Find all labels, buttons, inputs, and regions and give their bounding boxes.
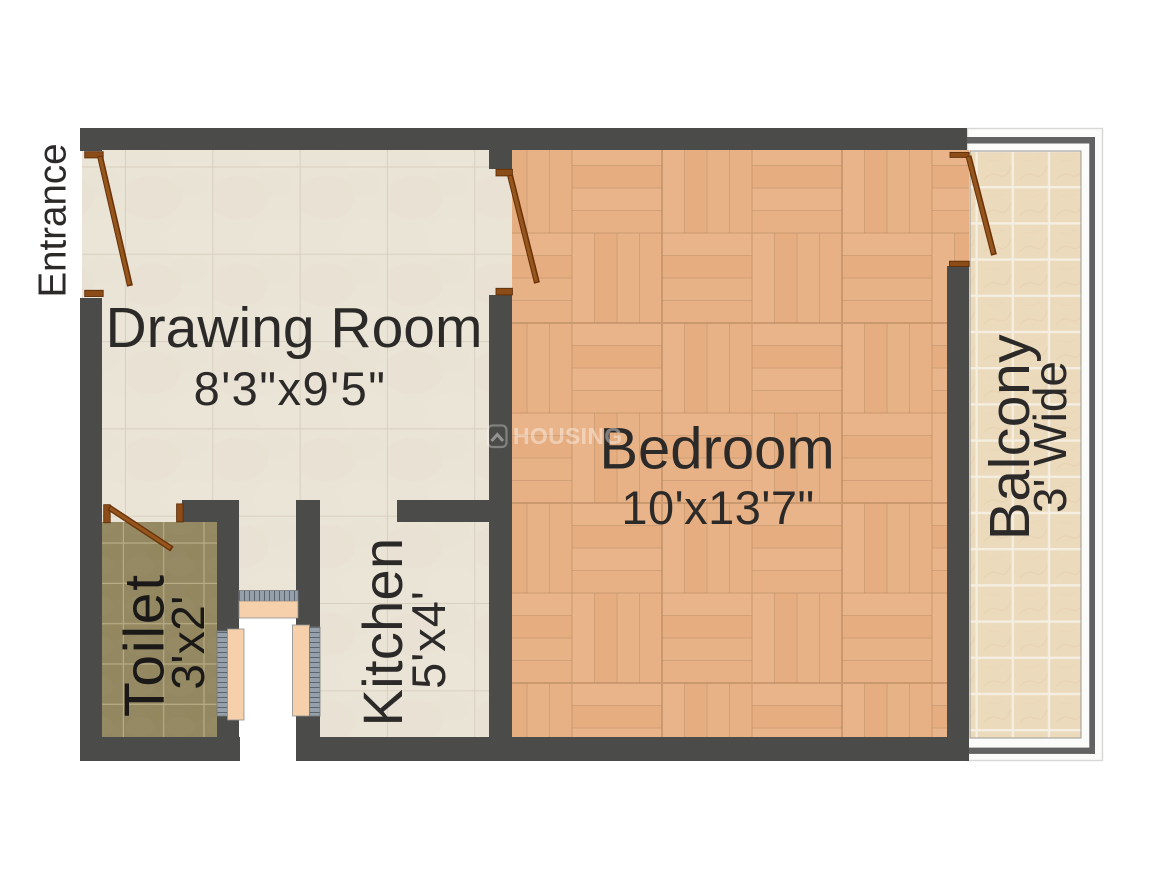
svg-text:5'x4': 5'x4' (402, 590, 455, 689)
svg-text:Bedroom: Bedroom (599, 417, 834, 482)
svg-text:HOUSING: HOUSING (513, 423, 622, 449)
svg-text:3' Wide: 3' Wide (1024, 361, 1076, 513)
svg-text:3'x2': 3'x2' (162, 595, 214, 689)
svg-text:Entrance: Entrance (32, 143, 75, 297)
svg-text:8'3"x9'5": 8'3"x9'5" (194, 362, 387, 415)
svg-text:10'x13'7": 10'x13'7" (621, 481, 814, 534)
svg-text:Drawing Room: Drawing Room (106, 296, 483, 360)
